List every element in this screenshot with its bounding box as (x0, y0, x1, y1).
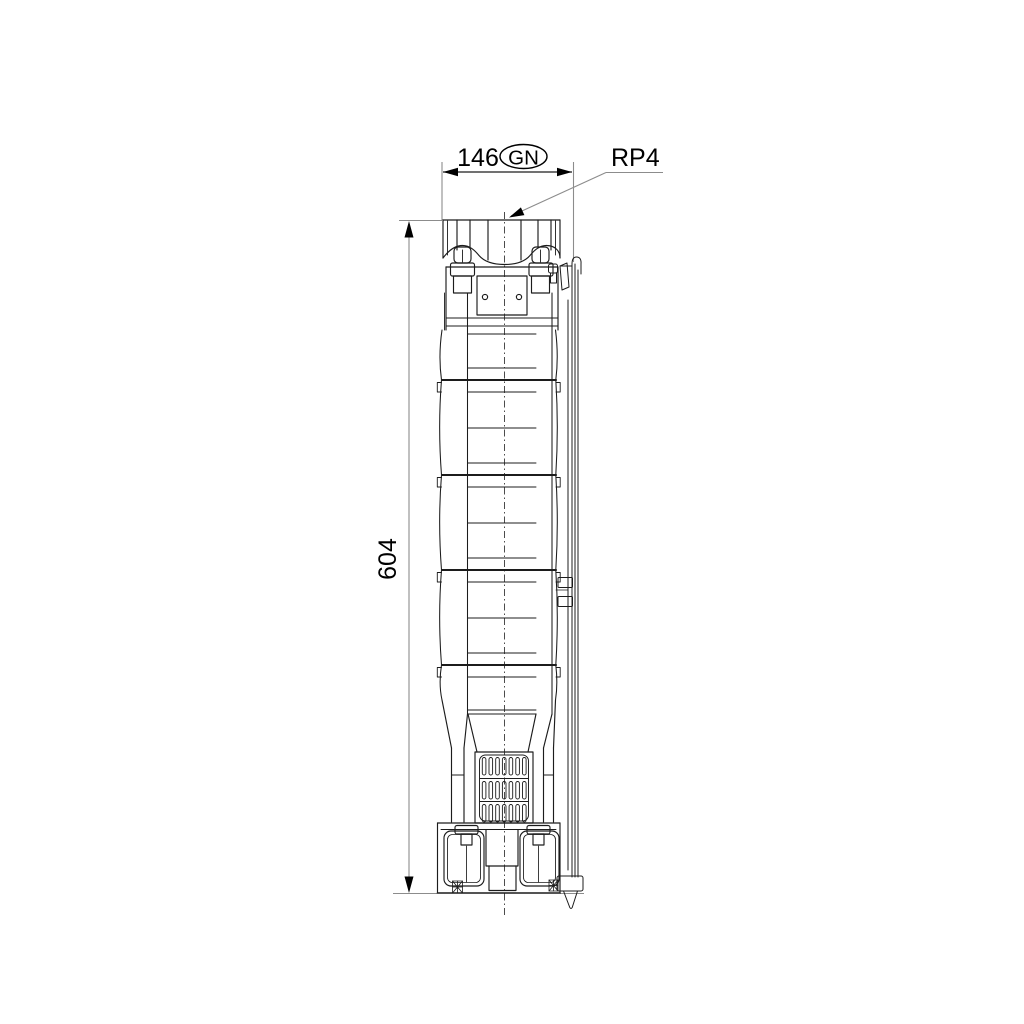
pump-dimensional-drawing: 146 GN RP4 604 (0, 0, 1024, 1024)
connection-port-label: RP4 (611, 144, 660, 172)
drawing-canvas: 146 GN RP4 604 (0, 0, 1024, 1024)
height-dimension-label: 604 (374, 538, 402, 580)
width-dimension-label: 146 (457, 144, 499, 172)
gn-badge-label: GN (508, 147, 539, 170)
vent-plug-left (453, 881, 463, 893)
